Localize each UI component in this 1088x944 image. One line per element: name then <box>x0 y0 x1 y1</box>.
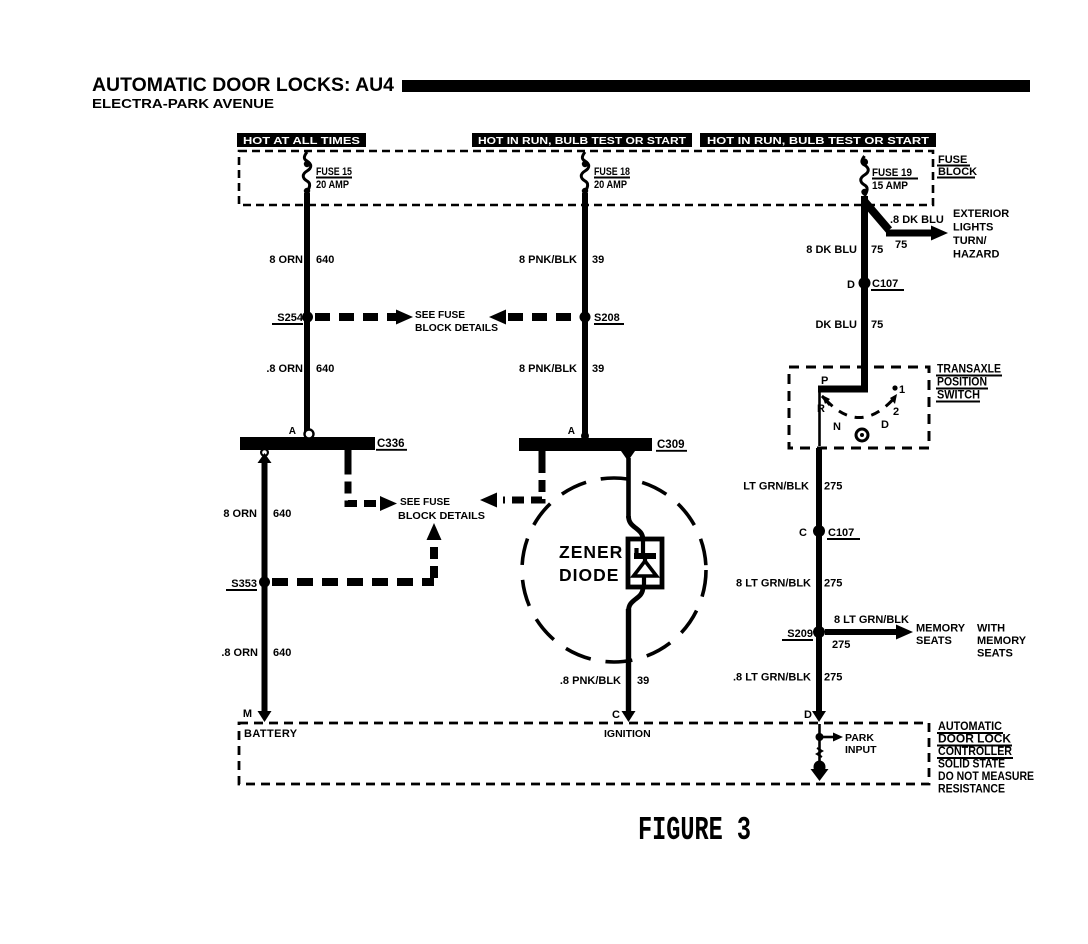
svg-text:39: 39 <box>592 363 604 375</box>
svg-text:FIGURE 3: FIGURE 3 <box>638 812 751 849</box>
svg-text:S254: S254 <box>277 312 304 324</box>
svg-text:BLOCK: BLOCK <box>938 166 977 178</box>
svg-text:MEMORY: MEMORY <box>916 623 966 635</box>
svg-text:275: 275 <box>824 481 842 493</box>
svg-text:PARK: PARK <box>845 732 874 744</box>
svg-text:8 ORN: 8 ORN <box>223 508 257 520</box>
svg-text:FUSE: FUSE <box>938 154 967 166</box>
svg-text:640: 640 <box>273 647 291 659</box>
svg-text:SEE FUSE: SEE FUSE <box>415 309 465 321</box>
svg-text:WITH: WITH <box>977 623 1005 635</box>
svg-text:ELECTRA-PARK AVENUE: ELECTRA-PARK AVENUE <box>92 97 274 111</box>
svg-text:8 DK BLU: 8 DK BLU <box>806 244 857 256</box>
svg-text:HOT IN RUN, BULB TEST OR START: HOT IN RUN, BULB TEST OR START <box>478 136 686 147</box>
svg-text:D: D <box>881 419 889 431</box>
svg-text:.8 ORN: .8 ORN <box>221 647 258 659</box>
svg-text:8 PNK/BLK: 8 PNK/BLK <box>519 363 577 375</box>
svg-text:20 AMP: 20 AMP <box>316 179 349 191</box>
svg-text:C: C <box>612 709 620 721</box>
svg-text:39: 39 <box>637 675 649 687</box>
svg-text:D: D <box>847 279 855 291</box>
svg-text:8 LT GRN/BLK: 8 LT GRN/BLK <box>736 578 811 590</box>
svg-text:LT GRN/BLK: LT GRN/BLK <box>743 481 809 493</box>
svg-text:LIGHTS: LIGHTS <box>953 222 993 234</box>
svg-text:20 AMP: 20 AMP <box>594 179 627 191</box>
svg-text:BLOCK DETAILS: BLOCK DETAILS <box>398 510 485 522</box>
svg-text:DO NOT MEASURE: DO NOT MEASURE <box>938 771 1034 783</box>
svg-text:SEATS: SEATS <box>977 648 1013 660</box>
svg-text:S353: S353 <box>231 578 257 590</box>
svg-text:SEATS: SEATS <box>916 635 952 647</box>
svg-text:SOLID STATE: SOLID STATE <box>938 759 1005 771</box>
svg-text:INPUT: INPUT <box>845 744 877 756</box>
svg-text:75: 75 <box>895 239 907 251</box>
svg-text:ZENER: ZENER <box>559 542 623 562</box>
svg-text:C336: C336 <box>377 438 405 450</box>
svg-text:SWITCH: SWITCH <box>937 390 980 402</box>
svg-text:75: 75 <box>871 319 883 331</box>
svg-text:A: A <box>289 426 296 437</box>
svg-text:640: 640 <box>316 363 334 375</box>
svg-text:BLOCK DETAILS: BLOCK DETAILS <box>415 322 498 334</box>
svg-text:FUSE 18: FUSE 18 <box>594 166 630 178</box>
svg-text:R: R <box>817 403 825 415</box>
svg-text:275: 275 <box>824 672 842 684</box>
svg-text:HOT IN RUN, BULB TEST OR START: HOT IN RUN, BULB TEST OR START <box>707 136 929 147</box>
svg-text:.8 ORN: .8 ORN <box>266 363 303 375</box>
svg-text:1: 1 <box>899 384 905 396</box>
svg-text:N: N <box>833 421 841 433</box>
svg-text:S208: S208 <box>594 312 620 324</box>
svg-text:C309: C309 <box>657 439 685 451</box>
svg-text:POSITION: POSITION <box>937 377 987 389</box>
svg-text:DOOR LOCK: DOOR LOCK <box>938 734 1012 746</box>
svg-text:.8 PNK/BLK: .8 PNK/BLK <box>560 675 621 687</box>
svg-text:8 PNK/BLK: 8 PNK/BLK <box>519 254 577 266</box>
svg-text:.8 DK BLU: .8 DK BLU <box>890 214 944 226</box>
svg-text:TURN/: TURN/ <box>953 235 987 247</box>
svg-text:IGNITION: IGNITION <box>604 728 651 740</box>
svg-text:8 ORN: 8 ORN <box>269 254 303 266</box>
svg-text:C107: C107 <box>872 278 898 290</box>
svg-text:EXTERIOR: EXTERIOR <box>953 208 1009 220</box>
svg-text:HAZARD: HAZARD <box>953 249 999 261</box>
svg-text:FUSE 19: FUSE 19 <box>872 167 912 179</box>
svg-text:AUTOMATIC: AUTOMATIC <box>938 721 1002 733</box>
svg-text:39: 39 <box>592 254 604 266</box>
svg-text:D: D <box>804 709 812 721</box>
svg-text:8 LT GRN/BLK: 8 LT GRN/BLK <box>834 614 909 626</box>
svg-text:275: 275 <box>824 578 842 590</box>
svg-text:M: M <box>243 708 252 720</box>
svg-text:A: A <box>568 426 575 437</box>
svg-text:AUTOMATIC DOOR LOCKS: AU4: AUTOMATIC DOOR LOCKS: AU4 <box>92 75 394 96</box>
svg-text:TRANSAXLE: TRANSAXLE <box>937 364 1001 376</box>
svg-text:15 AMP: 15 AMP <box>872 180 908 192</box>
svg-text:75: 75 <box>871 244 883 256</box>
svg-text:640: 640 <box>273 508 291 520</box>
svg-text:C107: C107 <box>828 527 854 539</box>
svg-text:C: C <box>799 527 807 539</box>
svg-text:275: 275 <box>832 639 850 651</box>
svg-text:P: P <box>821 375 828 387</box>
svg-text:DIODE: DIODE <box>559 565 619 585</box>
svg-text:HOT AT ALL TIMES: HOT AT ALL TIMES <box>243 136 360 147</box>
svg-text:RESISTANCE: RESISTANCE <box>938 784 1005 796</box>
svg-text:DK BLU: DK BLU <box>815 319 857 331</box>
svg-text:S209: S209 <box>787 628 813 640</box>
svg-text:640: 640 <box>316 254 334 266</box>
svg-text:CONTROLLER: CONTROLLER <box>938 746 1013 758</box>
svg-text:BATTERY: BATTERY <box>244 728 298 740</box>
svg-text:2: 2 <box>893 406 899 418</box>
svg-text:MEMORY: MEMORY <box>977 635 1027 647</box>
svg-text:SEE FUSE: SEE FUSE <box>400 496 450 508</box>
svg-text:FUSE 15: FUSE 15 <box>316 166 352 178</box>
svg-text:.8 LT GRN/BLK: .8 LT GRN/BLK <box>733 672 811 684</box>
